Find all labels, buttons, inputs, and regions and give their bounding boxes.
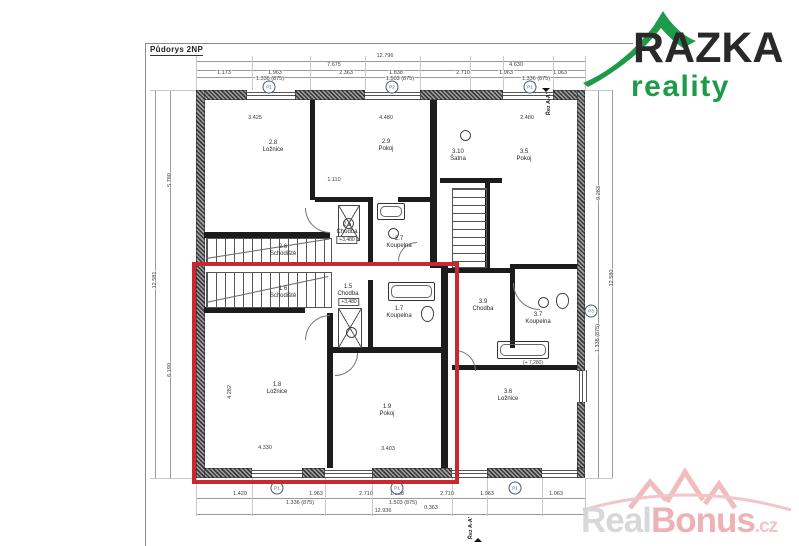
dimension-label: 3.425 (247, 115, 263, 121)
dimension-label: 1.173 (216, 70, 232, 76)
dimension-label: 1.338 (875) (595, 323, 601, 353)
dimension-line (196, 514, 586, 515)
wall-segment (420, 90, 503, 100)
extension-line (150, 478, 196, 479)
reference-mark: P2 (386, 81, 399, 94)
reference-mark: P1 (524, 81, 537, 94)
wall-segment (577, 90, 585, 371)
room-label: 3.6Ložnice (498, 389, 519, 403)
room-label: 3.5Pokoj (516, 149, 531, 163)
annotation: (+ 7,280) (523, 360, 543, 366)
extension-line (150, 90, 196, 91)
window-marker (542, 470, 577, 478)
dimension-label: 2.710 (439, 491, 455, 497)
dimension-label: 12.936 (374, 508, 393, 514)
dimension-label: 4.480 (378, 115, 394, 121)
inner-wall (440, 178, 502, 183)
dimension-label: 4.630 (508, 62, 524, 68)
inner-wall (310, 100, 315, 200)
highlight-rectangle (192, 262, 459, 484)
dimension-label: 9.283 (596, 185, 602, 201)
dimension-label: 1.110 (326, 177, 341, 183)
dimension-label: 1.420 (232, 491, 248, 497)
sink (460, 130, 471, 141)
room-label: 2.8Ložnice (263, 140, 284, 154)
door-arc (305, 208, 330, 233)
door-arc (513, 283, 540, 310)
dimension-label: 1.503 (875) (388, 500, 418, 506)
room-label: 2.7Koupelna (386, 236, 411, 250)
inner-wall (315, 197, 373, 202)
dimension-label: 1.336 (875) (285, 500, 315, 506)
room-label: 3.10Šatna (450, 149, 466, 163)
section-arrow (474, 534, 482, 542)
extension-line (310, 56, 311, 90)
window-marker (247, 92, 295, 100)
dimension-label: 1.963 (308, 491, 324, 497)
dimension-line (598, 90, 599, 478)
dimension-label: 5.780 (167, 172, 173, 188)
reference-mark: P3 (585, 305, 598, 318)
sheet-border-top (145, 43, 633, 44)
room-label: 2.5Chodba (336, 222, 357, 236)
extension-line (420, 56, 421, 90)
dimension-label: 1.963 (479, 491, 495, 497)
watermark-part1: Real (581, 501, 651, 540)
dimension-label: 2.710 (455, 70, 471, 76)
dimension-label: 1.063 (548, 491, 564, 497)
extension-line (487, 478, 488, 516)
inner-wall (368, 202, 373, 264)
reference-mark: P1 (263, 81, 276, 94)
room-label: 2.6Schodiště (270, 244, 296, 258)
dimension-label: 2.363 (338, 70, 354, 76)
dimension-line (170, 90, 171, 478)
dimension-label: 2.710 (358, 491, 374, 497)
dimension-label: 0.363 (423, 505, 439, 511)
wall-segment (295, 90, 365, 100)
stair-run (452, 188, 487, 268)
room-label: 3.9Chodba (472, 299, 493, 313)
logo-subtitle-text: reality (631, 72, 730, 102)
dimension-label: 12.796 (376, 53, 395, 59)
drawing-title: Půdorys 2NP (150, 45, 203, 56)
dimension-line (196, 61, 586, 62)
inner-wall (510, 264, 515, 348)
bathtub (497, 341, 549, 359)
agency-logo: RAZKA reality (575, 3, 799, 105)
inner-wall (430, 100, 437, 268)
extension-line (365, 56, 366, 90)
section-label: Řez A-A' (468, 517, 474, 539)
dimension-label: 1.063 (552, 70, 568, 76)
sheet-border-left (145, 43, 146, 546)
logo-brand-text: RAZKA (633, 27, 783, 70)
toilet (556, 293, 569, 309)
extension-line (196, 56, 197, 90)
dimension-label: 1.963 (498, 70, 514, 76)
dimension-line (196, 498, 586, 499)
extension-line (252, 56, 253, 90)
dimension-label: 12.581 (152, 271, 158, 290)
dimension-label: 12.580 (609, 269, 615, 288)
bathtub (377, 203, 405, 220)
room-label: 2.9Pokoj (378, 139, 393, 153)
watermark-part2: Bonus (651, 501, 755, 540)
watermark-tld: .cz (755, 516, 777, 537)
inner-wall (510, 264, 577, 269)
wall-segment (577, 402, 585, 468)
watermark: RealBonus.cz (575, 466, 799, 544)
reference-mark: P1 (509, 482, 522, 495)
window-marker (579, 370, 587, 402)
room-label: 3.7Koupelna (525, 312, 550, 326)
section-label: Řez A-A' (546, 93, 552, 115)
extension-line (542, 478, 543, 516)
floor-plan-sheet: Půdorys 2NP (0, 0, 799, 546)
dimension-label: 6.190 (167, 362, 173, 378)
level-mark: +3,480 (336, 236, 357, 244)
watermark-text: RealBonus.cz (581, 503, 777, 538)
wall-segment (487, 468, 542, 478)
dimension-label: 2.480 (519, 115, 535, 121)
dimension-label: 7.675 (326, 62, 342, 68)
